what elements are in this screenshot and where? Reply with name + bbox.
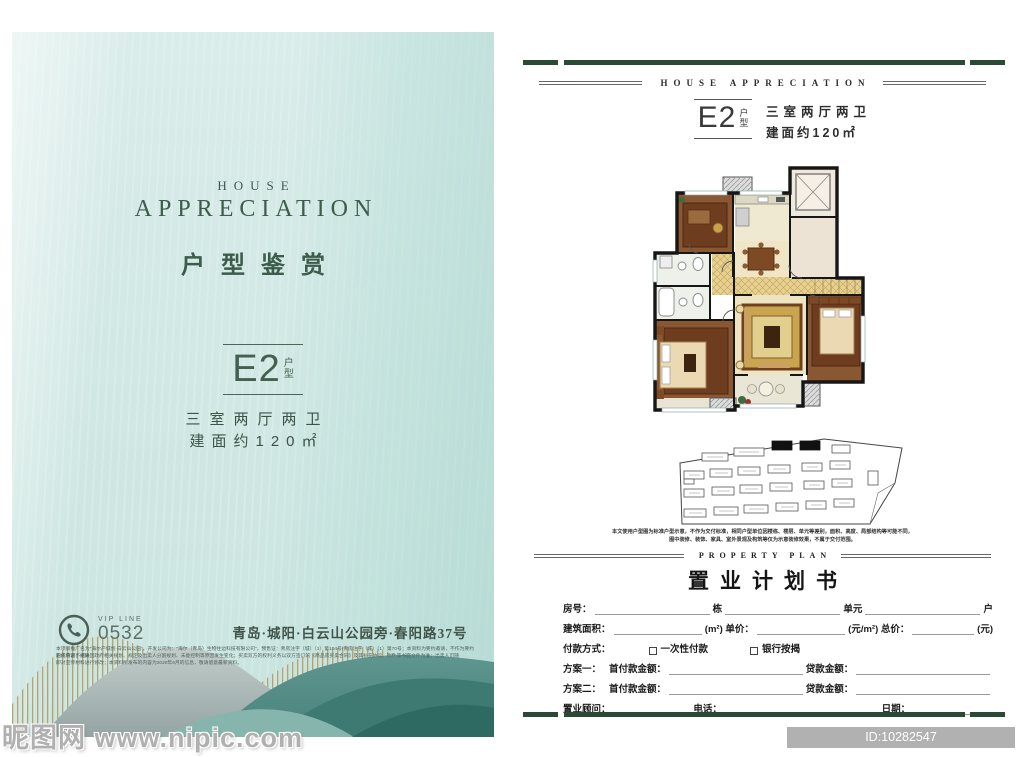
divider-line xyxy=(223,394,303,395)
label-total-price: (元/m²) 总价： xyxy=(848,621,909,635)
floor-plan xyxy=(640,158,910,450)
form-row-payment-method: 付款方式： 一次性付款 银行按揭 xyxy=(563,635,993,655)
label-down-payment: 首付款金额： xyxy=(609,681,666,695)
right-header-title: HOUSE APPRECIATION xyxy=(654,78,870,88)
unit-suffix-bottom: 型 xyxy=(284,369,294,380)
top-bar-segment xyxy=(970,60,1005,65)
form-row-plan-two: 方案二： 首付款金额： 贷款金额： xyxy=(563,675,993,695)
unit-code: E2 xyxy=(698,103,737,133)
right-header-row: HOUSE APPRECIATION xyxy=(520,78,1005,88)
checkbox-one-time-payment xyxy=(649,647,657,655)
property-plan-header-row: PROPERTY PLAN xyxy=(520,551,1005,560)
form-row-house-number: 房号： 栋 单元 户 xyxy=(563,595,993,615)
blank-line xyxy=(669,684,803,695)
vip-line-block: VIP LINE 0532 xyxy=(58,614,144,646)
vip-line-number: 0532 xyxy=(98,623,144,645)
left-title-en-house: HOUSE xyxy=(12,178,494,194)
right-page: HOUSE APPRECIATION E2 户 型 三室两厅两卫 建面约120㎡ xyxy=(520,35,1005,725)
label-one-time-payment: 一次性付款 xyxy=(661,641,709,655)
label-down-payment: 首付款金额： xyxy=(609,661,666,675)
left-spec-rooms: 三室两厅两卫 xyxy=(12,408,494,429)
left-title-cn: 户型鉴赏 xyxy=(12,245,494,280)
checkbox-bank-mortgage xyxy=(750,647,758,655)
blank-line xyxy=(856,664,990,675)
bottom-bar-segment xyxy=(523,712,558,717)
property-plan-title-en: PROPERTY PLAN xyxy=(694,551,831,560)
label-floor-area: 建筑面积： xyxy=(563,621,611,635)
label-bank-mortgage: 银行按揭 xyxy=(762,641,800,655)
form-row-area-price: 建筑面积： (m²) 单价： (元/m²) 总价： (元) xyxy=(563,615,993,635)
blank-line xyxy=(725,604,840,615)
top-bar-segment xyxy=(564,60,965,65)
right-spec-rooms: 三室两厅两卫 xyxy=(766,101,871,120)
phone-icon xyxy=(58,614,90,646)
site-plan xyxy=(672,433,910,530)
brochure-spread: HOUSE APPRECIATION 户型鉴赏 E2 户 型 三室两厅两卫 建面… xyxy=(0,0,1024,757)
label-payment-method: 付款方式： xyxy=(563,641,611,655)
floor-plan-disclaimer: 图中装修、装饰、家具、室外景观及构筑等仅为示意装修效果，不属于交付范围。 xyxy=(520,536,1005,544)
right-unit-badge: E2 户 型 xyxy=(692,103,754,133)
legal-fine-print: 即对宣传材料进行修改；本资料所发布的内容为2020年6月的信息，敬请留意最新资料… xyxy=(56,660,474,667)
unit-code: E2 xyxy=(232,350,280,388)
label-yuan: (元) xyxy=(977,621,993,635)
label-unit-price: (m²) 单价： xyxy=(705,621,754,635)
double-line-left xyxy=(534,554,684,558)
project-address: 青岛·城阳·白云山公园旁·春阳路37号 xyxy=(217,622,483,642)
label-building: 栋 xyxy=(713,601,723,615)
label-loan-amount: 贷款金额： xyxy=(806,661,854,675)
double-line-right xyxy=(883,81,986,85)
floor-plan-disclaimer: 本文使用户型图为标准户型示意，不作为交付标准，相同户型单位因楼栋、楼层、单元等差… xyxy=(520,528,1005,536)
vip-line-label: VIP LINE xyxy=(98,616,144,623)
form-row-plan-one: 方案一： 首付款金额： 贷款金额： xyxy=(563,655,993,675)
left-page: HOUSE APPRECIATION 户型鉴赏 E2 户 型 三室两厅两卫 建面… xyxy=(12,32,494,737)
left-title-en-appreciation: APPRECIATION xyxy=(12,196,494,223)
nipic-watermark: 昵图网 www.nipic.com xyxy=(2,716,303,755)
divider-line xyxy=(694,99,752,100)
unit-suffix-bottom: 型 xyxy=(739,118,748,128)
bottom-bar-segment xyxy=(564,712,965,717)
divider-line xyxy=(694,138,752,139)
blank-line xyxy=(757,624,845,635)
blank-line xyxy=(912,624,974,635)
left-spec-area: 建面约120㎡ xyxy=(12,430,494,451)
legal-fine-print: 宣传内容不排除因政府相关规划、规定及出卖人分割规划、未能控制等原因发生变化；买卖… xyxy=(56,653,474,660)
unit-suffix-top: 户 xyxy=(284,358,294,369)
property-plan-title-cn: 置业计划书 xyxy=(520,565,1005,595)
blank-line xyxy=(856,684,990,695)
label-loan-amount: 贷款金额： xyxy=(806,681,854,695)
blank-line xyxy=(595,604,710,615)
double-line-right xyxy=(841,554,991,558)
label-unit: 单元 xyxy=(843,601,862,615)
double-line-left xyxy=(539,81,642,85)
label-plan-one: 方案一： xyxy=(563,661,601,675)
bottom-bar-segment xyxy=(970,712,1005,717)
label-door: 户 xyxy=(983,601,993,615)
blank-line xyxy=(669,664,803,675)
left-unit-badge: E2 户 型 xyxy=(203,350,323,388)
right-spec-area: 建面约120㎡ xyxy=(766,122,858,141)
unit-suffix-top: 户 xyxy=(739,108,748,118)
label-plan-two: 方案二： xyxy=(563,681,601,695)
blank-line xyxy=(865,604,980,615)
blank-line xyxy=(614,624,702,635)
top-bar-segment xyxy=(523,60,558,65)
divider-line xyxy=(223,344,303,345)
stock-id-watermark: ID:10282547 NO:20210712103909855102 xyxy=(787,727,1015,748)
property-plan-form: 房号： 栋 单元 户 建筑面积： (m²) 单价： (元/m²) 总价： (元)… xyxy=(563,595,993,715)
label-house-no: 房号： xyxy=(563,601,592,615)
